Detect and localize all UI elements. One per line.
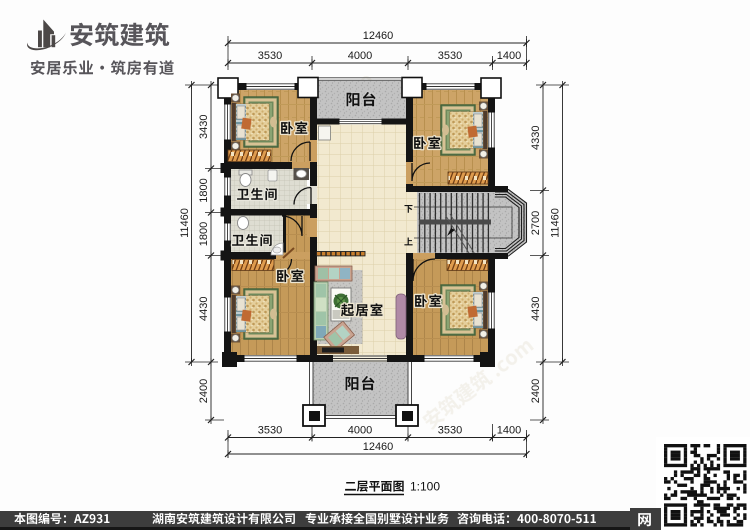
svg-text:1800: 1800 (198, 222, 210, 246)
svg-text:1400: 1400 (497, 50, 521, 62)
svg-text:3530: 3530 (438, 425, 462, 437)
svg-text:1400: 1400 (497, 425, 521, 437)
svg-text:2700: 2700 (530, 211, 542, 235)
svg-text:3530: 3530 (258, 50, 282, 62)
svg-text:2400: 2400 (198, 379, 210, 403)
svg-text:4430: 4430 (530, 296, 542, 320)
svg-text:3530: 3530 (438, 50, 462, 62)
svg-text:11460: 11460 (179, 208, 191, 238)
svg-text:12460: 12460 (363, 30, 394, 42)
svg-text:4430: 4430 (198, 296, 210, 320)
svg-text:4000: 4000 (348, 425, 372, 437)
svg-text:11460: 11460 (550, 208, 562, 238)
svg-text:1800: 1800 (198, 178, 210, 202)
svg-text:3530: 3530 (258, 425, 282, 437)
svg-text:4330: 4330 (530, 125, 542, 149)
svg-text:1:100: 1:100 (410, 480, 440, 494)
svg-text:4000: 4000 (348, 50, 372, 62)
svg-text:2400: 2400 (530, 379, 542, 403)
svg-text:12460: 12460 (363, 441, 394, 453)
svg-text:3430: 3430 (198, 114, 210, 138)
